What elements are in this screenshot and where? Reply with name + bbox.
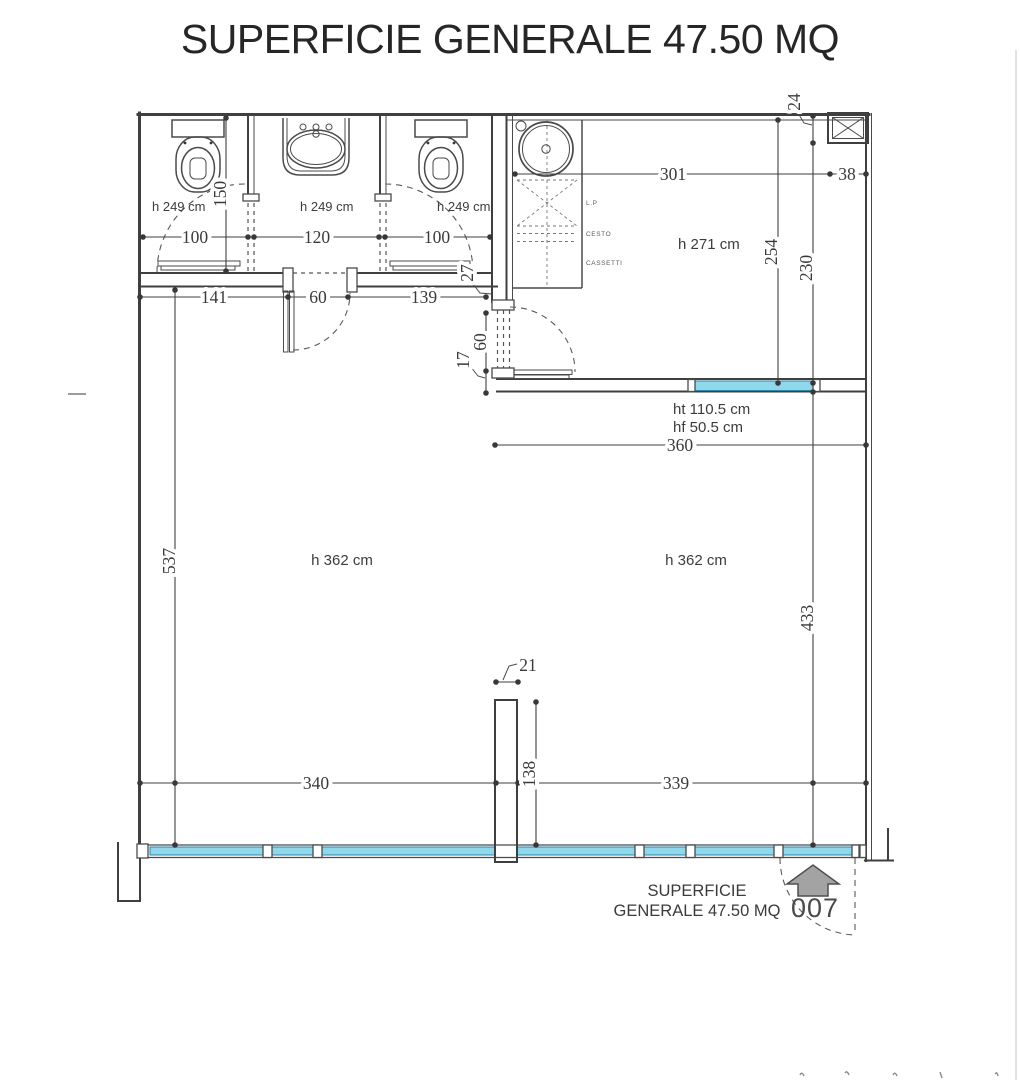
dim-front-door: 60 [309,287,327,307]
dim-basin-room-width: 120 [304,227,331,247]
dim-bathroom-depth: 150 [210,181,230,208]
label-cabinet-lp: L.P [586,200,598,207]
dim-shaft-gap: 38 [838,164,856,184]
wc-left-door-leaf [158,261,240,270]
dimension-lines [137,113,869,848]
dim-living-depth-left: 537 [159,548,179,575]
dim-kitchen-depth-right: 230 [796,255,816,282]
dim-living-depth-right: 433 [797,605,817,632]
toilet-right [415,120,467,192]
label-kitchen-height: h 271 cm [678,236,740,253]
floor-plan-page: SUPERFICIE GENERALE 47.50 MQ [0,0,1020,1080]
label-cabinet-cassetti: CASSETTI [586,260,623,267]
dim-front-left: 141 [201,287,227,307]
label-wc-right-height: h 249 cm [437,199,490,214]
kitchen-door [492,300,575,379]
entrance-arrow-icon [787,865,839,896]
dim-bottom-right: 339 [663,773,690,793]
footer-caption-line1: SUPERFICIE [647,882,746,900]
central-pillar [495,700,517,862]
floor-plan-drawing: h 249 cm h 249 cm h 249 cm 100 120 100 1… [0,0,1020,1080]
bottom-window-band [137,844,866,858]
dim-corner-27: 27 [457,264,477,282]
dim-kitchen-depth-left: 254 [761,239,781,266]
internal-window [688,380,820,392]
label-living-height-right: h 362 cm [665,552,727,569]
dim-kitchen-width: 301 [660,164,686,184]
kitchen-sink [516,121,573,176]
dim-pillar-width: 21 [519,655,537,675]
label-basin-room-height: h 249 cm [300,199,353,214]
corridor-door [283,268,357,352]
unit-number: 007 [791,893,839,923]
shaft-box [828,113,868,143]
dim-shaft-depth: 24 [784,93,804,111]
dim-front-right: 139 [411,287,438,307]
dim-bottom-left: 340 [303,773,330,793]
dim-wc-right-width: 100 [424,227,451,247]
footer-caption-line2: GENERALE 47.50 MQ [614,902,781,920]
dim-pillar-offset: 138 [519,761,539,788]
kitchen-door-swing [510,307,575,372]
label-wc-left-height: h 249 cm [152,199,205,214]
dim-window-width: 360 [667,435,694,455]
label-living-height-left: h 362 cm [311,552,373,569]
dim-kitchen-door-jamb: 17 [453,351,473,369]
label-window-hf: hf 50.5 cm [673,419,743,436]
washbasin [283,118,349,175]
label-cabinet-cesto: CESTO [586,231,611,238]
label-window-ht: ht 110.5 cm [673,401,750,418]
dim-wc-left-width: 100 [182,227,209,247]
dim-kitchen-door-width: 60 [470,333,490,351]
